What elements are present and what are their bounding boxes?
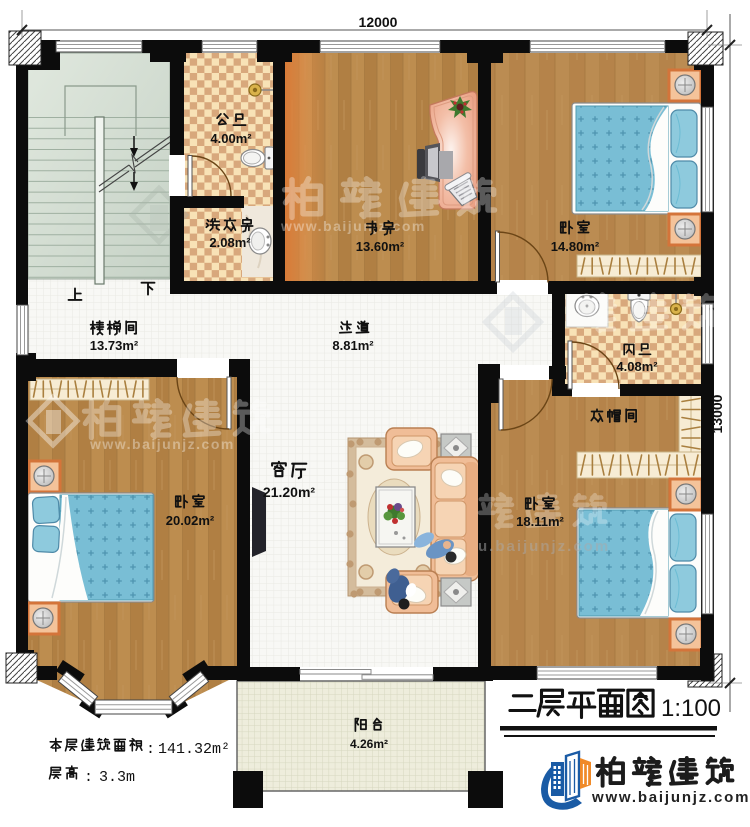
svg-text:u.baijunjz.com: u.baijunjz.com <box>478 538 610 555</box>
svg-text:www.baijunjz.com: www.baijunjz.com <box>591 789 750 806</box>
svg-text:141.32m²: 141.32m² <box>158 741 230 758</box>
svg-text:8.81m²: 8.81m² <box>332 338 374 353</box>
svg-text::: : <box>146 741 155 758</box>
svg-text:2.08m²: 2.08m² <box>209 235 251 250</box>
svg-text:4.08m²: 4.08m² <box>616 359 658 374</box>
svg-text:13000: 13000 <box>709 394 725 433</box>
svg-text::: : <box>84 769 93 786</box>
svg-text:3.3m: 3.3m <box>99 769 135 786</box>
svg-text:20.02m²: 20.02m² <box>166 513 215 528</box>
svg-text:14.80m²: 14.80m² <box>551 239 600 254</box>
svg-text:21.20m²: 21.20m² <box>263 484 315 500</box>
svg-text:13.60m²: 13.60m² <box>356 239 405 254</box>
svg-text:4.00m²: 4.00m² <box>210 131 252 146</box>
svg-text:1:100: 1:100 <box>661 695 721 722</box>
svg-text:12000: 12000 <box>359 14 398 30</box>
svg-text:13.73m²: 13.73m² <box>90 338 139 353</box>
svg-text:www.baijunjz.com: www.baijunjz.com <box>89 436 235 452</box>
svg-text:4.26m²: 4.26m² <box>350 737 388 751</box>
svg-text:18.11m²: 18.11m² <box>516 514 564 529</box>
svg-text:www.baijunjz.com: www.baijunjz.com <box>280 218 426 234</box>
